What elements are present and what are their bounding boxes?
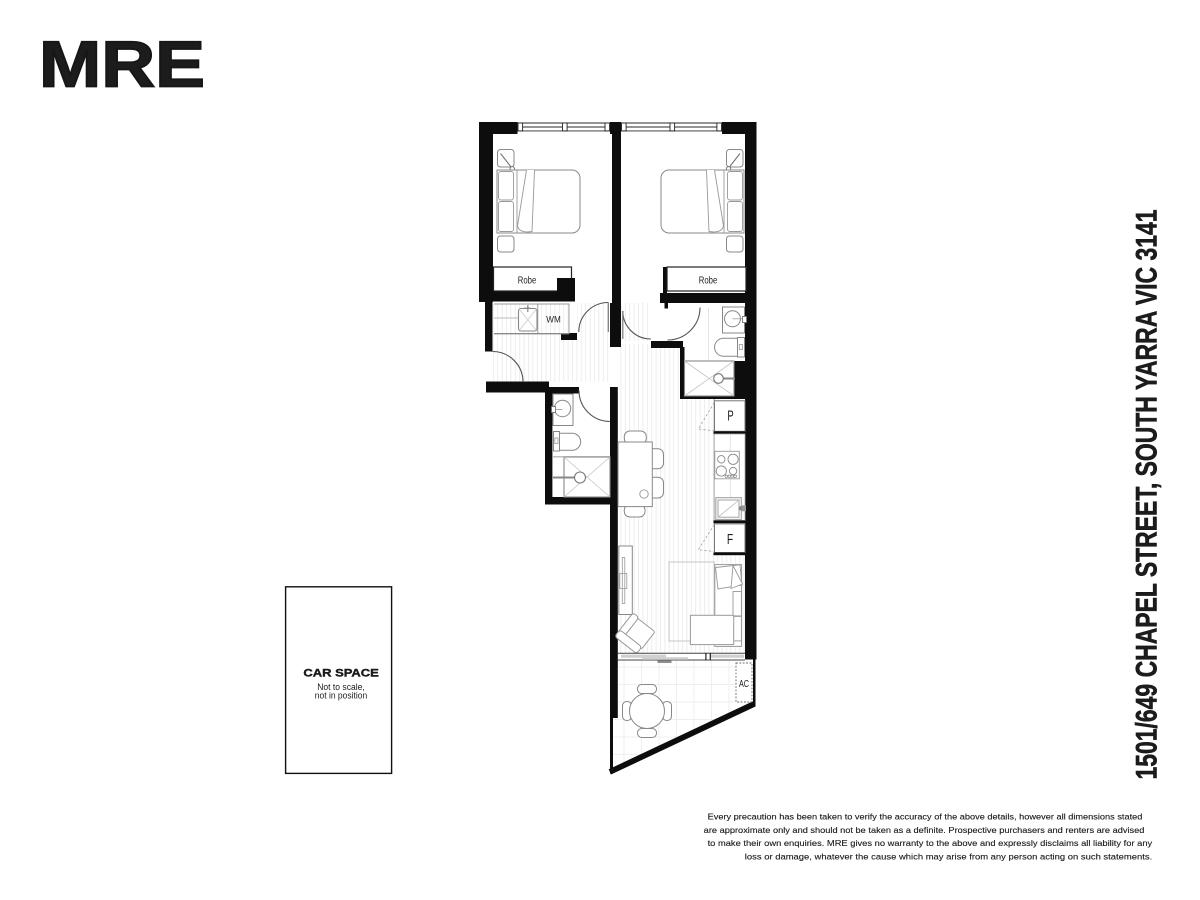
svg-text:P: P [727, 407, 733, 424]
svg-text:not in position: not in position [315, 690, 368, 700]
svg-text:Every precaution has been take: Every precaution has been taken to verif… [708, 811, 1143, 821]
svg-text:F: F [727, 531, 733, 548]
svg-text:AC: AC [739, 679, 749, 690]
svg-text:loss or damage, whatever the c: loss or damage, whatever the cause which… [745, 852, 1152, 862]
svg-text:Robe: Robe [518, 275, 537, 286]
svg-text:1501/649 CHAPEL STREET, SOUTH: 1501/649 CHAPEL STREET, SOUTH YARRA VIC … [1131, 210, 1164, 780]
svg-text:MRE: MRE [39, 28, 205, 101]
svg-text:Robe: Robe [699, 275, 718, 286]
svg-text:WM: WM [546, 315, 561, 325]
svg-text:CAR SPACE: CAR SPACE [303, 667, 379, 679]
svg-text:to make their own enquiries. M: to make their own enquiries. MRE gives n… [708, 838, 1153, 848]
svg-text:are approximate only and shoul: are approximate only and should not be t… [704, 825, 1145, 835]
